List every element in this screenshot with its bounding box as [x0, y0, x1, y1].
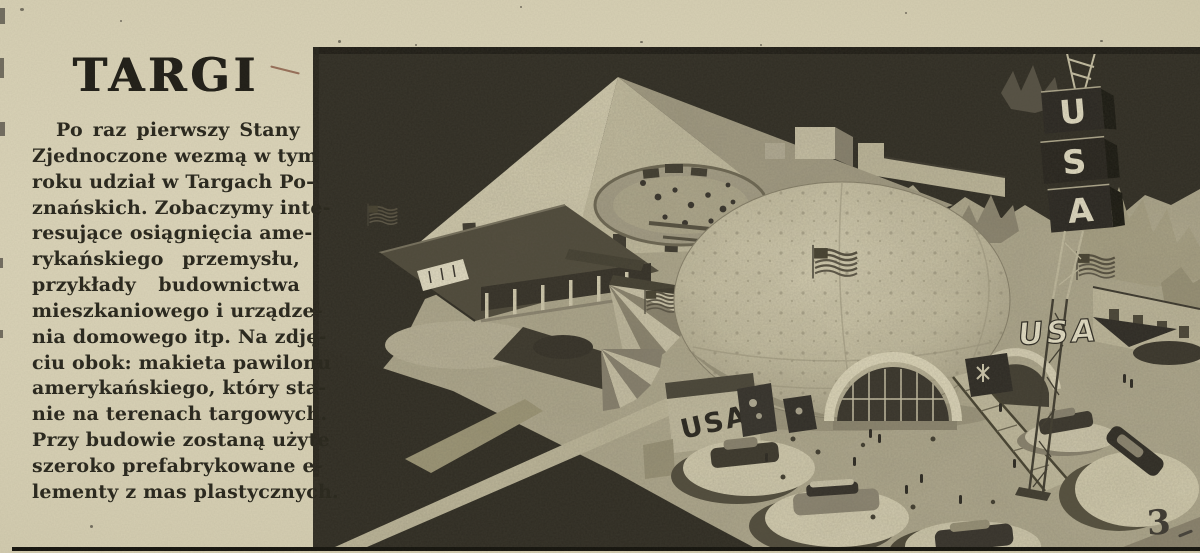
paragraph-line: szeroko prefabrykowane e-	[32, 454, 300, 480]
paragraph-line: Przy budowie zostaną użyte	[32, 428, 300, 454]
dust-speck	[90, 525, 93, 528]
magazine-page: TARGI Po raz pierwszy Stany Zjednoczone …	[0, 0, 1200, 553]
paragraph-line: przykłady budownictwa	[32, 273, 300, 299]
dust-speck	[520, 6, 522, 8]
dust-speck	[415, 44, 417, 46]
dust-speck	[1100, 40, 1103, 42]
dust-speck	[760, 44, 762, 46]
paragraph-line: rykańskiego przemysłu,	[32, 247, 300, 273]
paragraph-line: znańskich. Zobaczymy inte-	[32, 196, 300, 222]
pavilion-model-photo-art: USA	[313, 47, 1200, 547]
scan-edge-mark	[0, 8, 5, 24]
paragraph-line: roku udział w Targach Po-	[32, 170, 300, 196]
paragraph-line: mieszkaniowego i urządze-	[32, 299, 300, 325]
dust-speck	[20, 8, 24, 11]
paragraph-line: resujące osiągnięcia ame-	[32, 221, 300, 247]
scan-edge-mark	[0, 122, 5, 136]
paragraph-line: ciu obok: makieta pawilonu	[32, 351, 300, 377]
pavilion-model-photo: USA	[313, 47, 1200, 547]
dust-speck	[338, 40, 341, 43]
scan-edge-mark	[0, 258, 3, 268]
paragraph-line: Po raz pierwszy Stany	[32, 118, 300, 144]
dust-speck	[905, 12, 907, 14]
paragraph-line: nia domowego itp. Na zdję-	[32, 325, 300, 351]
scan-edge-mark	[0, 330, 3, 338]
article-paragraph: Po raz pierwszy Stany Zjednoczone wezmą …	[32, 118, 300, 506]
dust-speck	[640, 41, 643, 43]
article-headline: TARGI	[30, 52, 302, 98]
paragraph-line: nie na terenach targowych.	[32, 402, 300, 428]
bottom-rule	[12, 547, 1200, 551]
film-grain-overlay	[313, 47, 1200, 547]
paragraph-line: amerykańskiego, który sta-	[32, 376, 300, 402]
dust-speck	[120, 20, 122, 22]
paragraph-line: lementy z mas plastycznych.	[32, 480, 300, 506]
scan-edge-mark	[0, 58, 4, 78]
paragraph-line: Zjednoczone wezmą w tym	[32, 144, 300, 170]
page-number: 3	[1146, 505, 1173, 541]
